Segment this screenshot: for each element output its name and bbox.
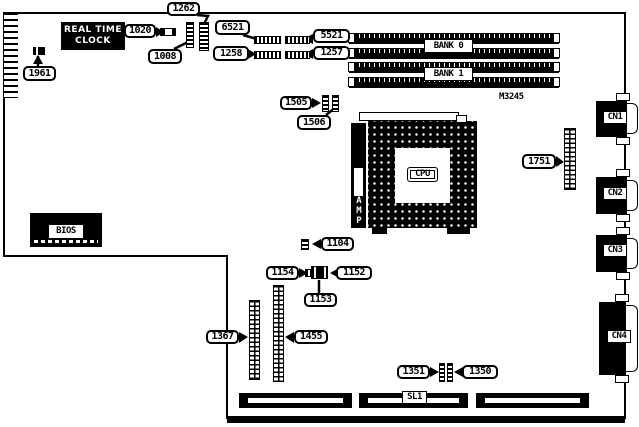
callout-6521: 6521 xyxy=(215,20,250,35)
cn3-mount-tab-bottom xyxy=(616,272,630,280)
cn3-mount-tab-top xyxy=(616,227,630,235)
callout-1751: 1751 xyxy=(522,154,556,169)
bios-chip-dashed-edge xyxy=(34,240,98,243)
cn4-mount-tab-top xyxy=(615,294,629,302)
cn1-mount-tab-top xyxy=(616,93,630,101)
motherboard-layout-diagram: REAL TIME CLOCK BANK 0 BANK 1 M3245 AMP … xyxy=(0,0,639,427)
cn1-label: CN1 xyxy=(603,111,627,124)
socket-foot-right xyxy=(447,228,470,234)
callout-1008: 1008 xyxy=(148,49,182,64)
cn4-label: CN4 xyxy=(607,330,631,343)
cn2-mount-tab-top xyxy=(616,169,630,177)
callout-1506: 1506 xyxy=(297,115,331,130)
cn2-label: CN2 xyxy=(603,187,627,200)
bank0-label: BANK 0 xyxy=(424,39,473,53)
board-bottom-edge xyxy=(227,416,625,423)
callout-1152: 1152 xyxy=(336,266,372,280)
jumper-1020 xyxy=(160,28,176,36)
amp-socket-label: AMP xyxy=(354,196,364,228)
zif-lever-end xyxy=(456,115,467,123)
callout-1455: 1455 xyxy=(294,330,328,344)
header-1008 xyxy=(186,22,194,48)
callout-1505: 1505 xyxy=(280,96,312,110)
jumper-1104 xyxy=(301,239,309,250)
cn2-mount-tab-bottom xyxy=(616,214,630,222)
slot-stripe xyxy=(485,398,580,403)
edge-connector-fingers xyxy=(4,13,18,98)
jumper-1506 xyxy=(332,95,339,112)
pin-row-1258 xyxy=(254,51,281,59)
callout-1104: 1104 xyxy=(321,237,354,251)
callout-1153: 1153 xyxy=(304,293,337,307)
callout-1351: 1351 xyxy=(397,365,430,379)
cn1-mount-tab-bottom xyxy=(616,137,630,145)
callout-1262: 1262 xyxy=(167,2,200,16)
model-number: M3245 xyxy=(499,93,524,102)
jumper-block-1153 xyxy=(311,266,328,279)
slot-stripe xyxy=(248,398,343,403)
zif-lever xyxy=(359,112,459,121)
bank1-label: BANK 1 xyxy=(424,67,473,81)
callout-1154: 1154 xyxy=(266,266,299,280)
callout-1020: 1020 xyxy=(124,24,156,38)
rtc-label-line1: REAL TIME xyxy=(64,25,122,36)
expansion-slot-3 xyxy=(476,393,589,408)
rtc-chip: REAL TIME CLOCK xyxy=(61,22,125,50)
header-1262 xyxy=(199,22,209,51)
pin-row-5521 xyxy=(285,36,310,44)
sl1-label: SL1 xyxy=(402,391,427,404)
cpu-label: CPU xyxy=(407,167,438,182)
pin-row-6521 xyxy=(254,36,281,44)
rtc-label-line2: CLOCK xyxy=(75,36,111,47)
jumper-1961 xyxy=(33,47,45,55)
pin-row-1257 xyxy=(285,51,310,59)
jumper-1350 xyxy=(447,363,453,382)
header-1751 xyxy=(564,128,576,190)
socket-foot-left xyxy=(372,228,387,234)
callout-5521: 5521 xyxy=(313,29,350,43)
callout-1961: 1961 xyxy=(23,66,56,81)
callout-1350: 1350 xyxy=(462,365,498,379)
cn4-mount-tab-bottom xyxy=(615,375,629,383)
jumper-1505 xyxy=(322,95,329,112)
expansion-slot-1 xyxy=(239,393,352,408)
callout-1257: 1257 xyxy=(313,46,350,60)
amp-socket-notch xyxy=(354,168,363,196)
cn3-label: CN3 xyxy=(603,244,627,257)
jumper-1351 xyxy=(439,363,445,382)
callout-1258: 1258 xyxy=(213,46,249,61)
header-1367 xyxy=(249,300,260,380)
header-1455 xyxy=(273,285,284,382)
callout-1367: 1367 xyxy=(206,330,239,344)
bios-label: BIOS xyxy=(48,224,84,239)
